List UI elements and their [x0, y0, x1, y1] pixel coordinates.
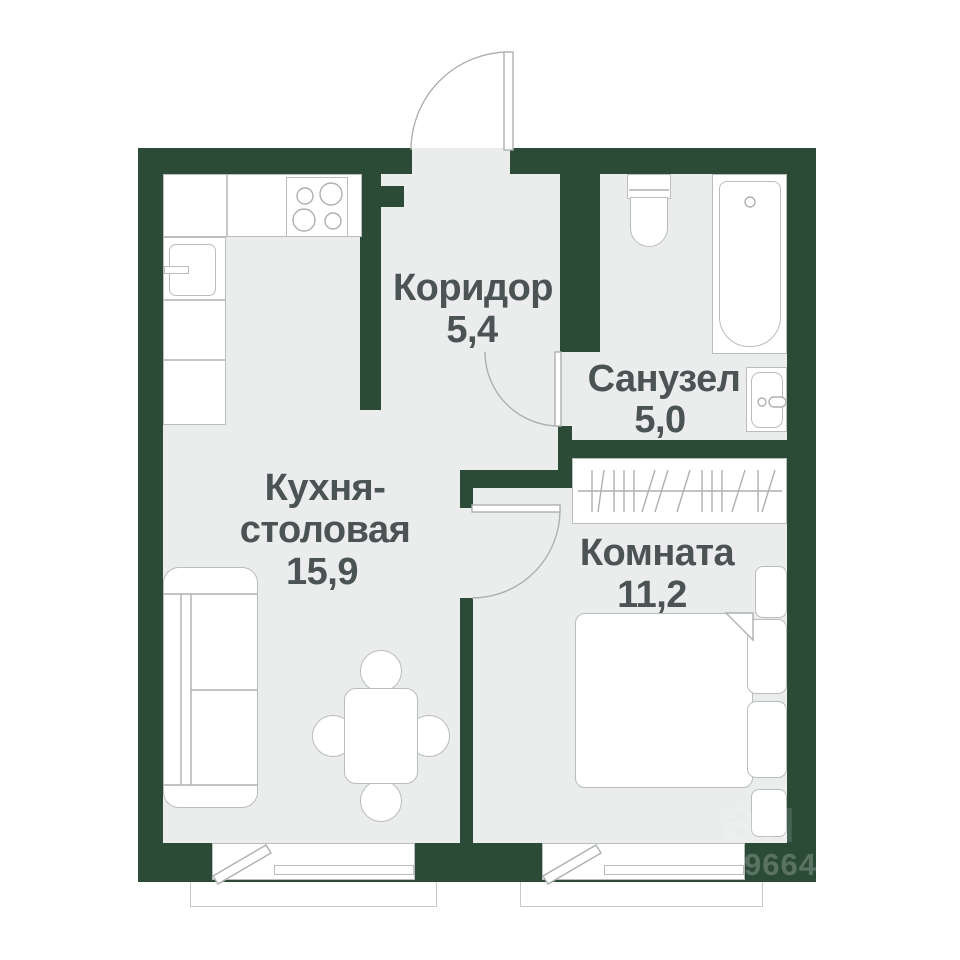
entrance-door-icon — [411, 52, 513, 150]
wall-right — [787, 148, 816, 882]
wall-top-left — [138, 148, 412, 174]
toilet-bowl-icon — [630, 197, 668, 247]
window-sill-right — [520, 880, 763, 907]
bathroom-label: Санузел — [534, 360, 794, 398]
room-window-slider — [604, 865, 744, 875]
room-area: 11,2 — [522, 576, 782, 614]
room-label: Комната — [527, 534, 787, 572]
corridor-label: Коридор — [343, 269, 603, 307]
bathtub-basin — [719, 181, 781, 347]
nightstand-icon-bottom — [751, 789, 787, 837]
floor-plan: Коридор 5,4 Санузел 5,0 Кухня- столовая … — [0, 0, 960, 960]
entrance-opening-floor — [412, 148, 510, 174]
kitchen-label-line1: Кухня- — [195, 469, 455, 507]
wall-left — [138, 148, 163, 882]
kitchen-area: 15,9 — [192, 553, 452, 591]
bathroom-area: 5,0 — [530, 401, 790, 439]
wall-entrance-stub — [381, 186, 404, 207]
kitchen-label-line2: столовая — [195, 511, 455, 549]
wall-bathroom-room — [558, 440, 787, 458]
wall-kitchen-room-bottom — [460, 598, 473, 843]
toilet-tank-icon — [627, 174, 671, 199]
wall-kitchen-room-top — [460, 470, 473, 508]
chair-icon-bottom — [360, 780, 402, 822]
sofa-icon — [163, 567, 258, 808]
pillow-icon-top — [747, 619, 787, 694]
window-sill-left — [190, 880, 437, 907]
stove-icon — [286, 177, 348, 237]
wardrobe-icon — [572, 458, 787, 524]
wall-corridor-room — [460, 470, 572, 488]
chair-icon-top — [360, 650, 402, 692]
corridor-area: 5,4 — [342, 311, 602, 349]
wall-top-right — [510, 148, 816, 174]
dining-table-icon — [344, 688, 418, 784]
pillow-icon-bottom — [747, 701, 787, 778]
kitchen-faucet-icon — [164, 266, 189, 274]
bed-icon — [575, 613, 753, 788]
kitchen-window-slider — [274, 865, 414, 875]
